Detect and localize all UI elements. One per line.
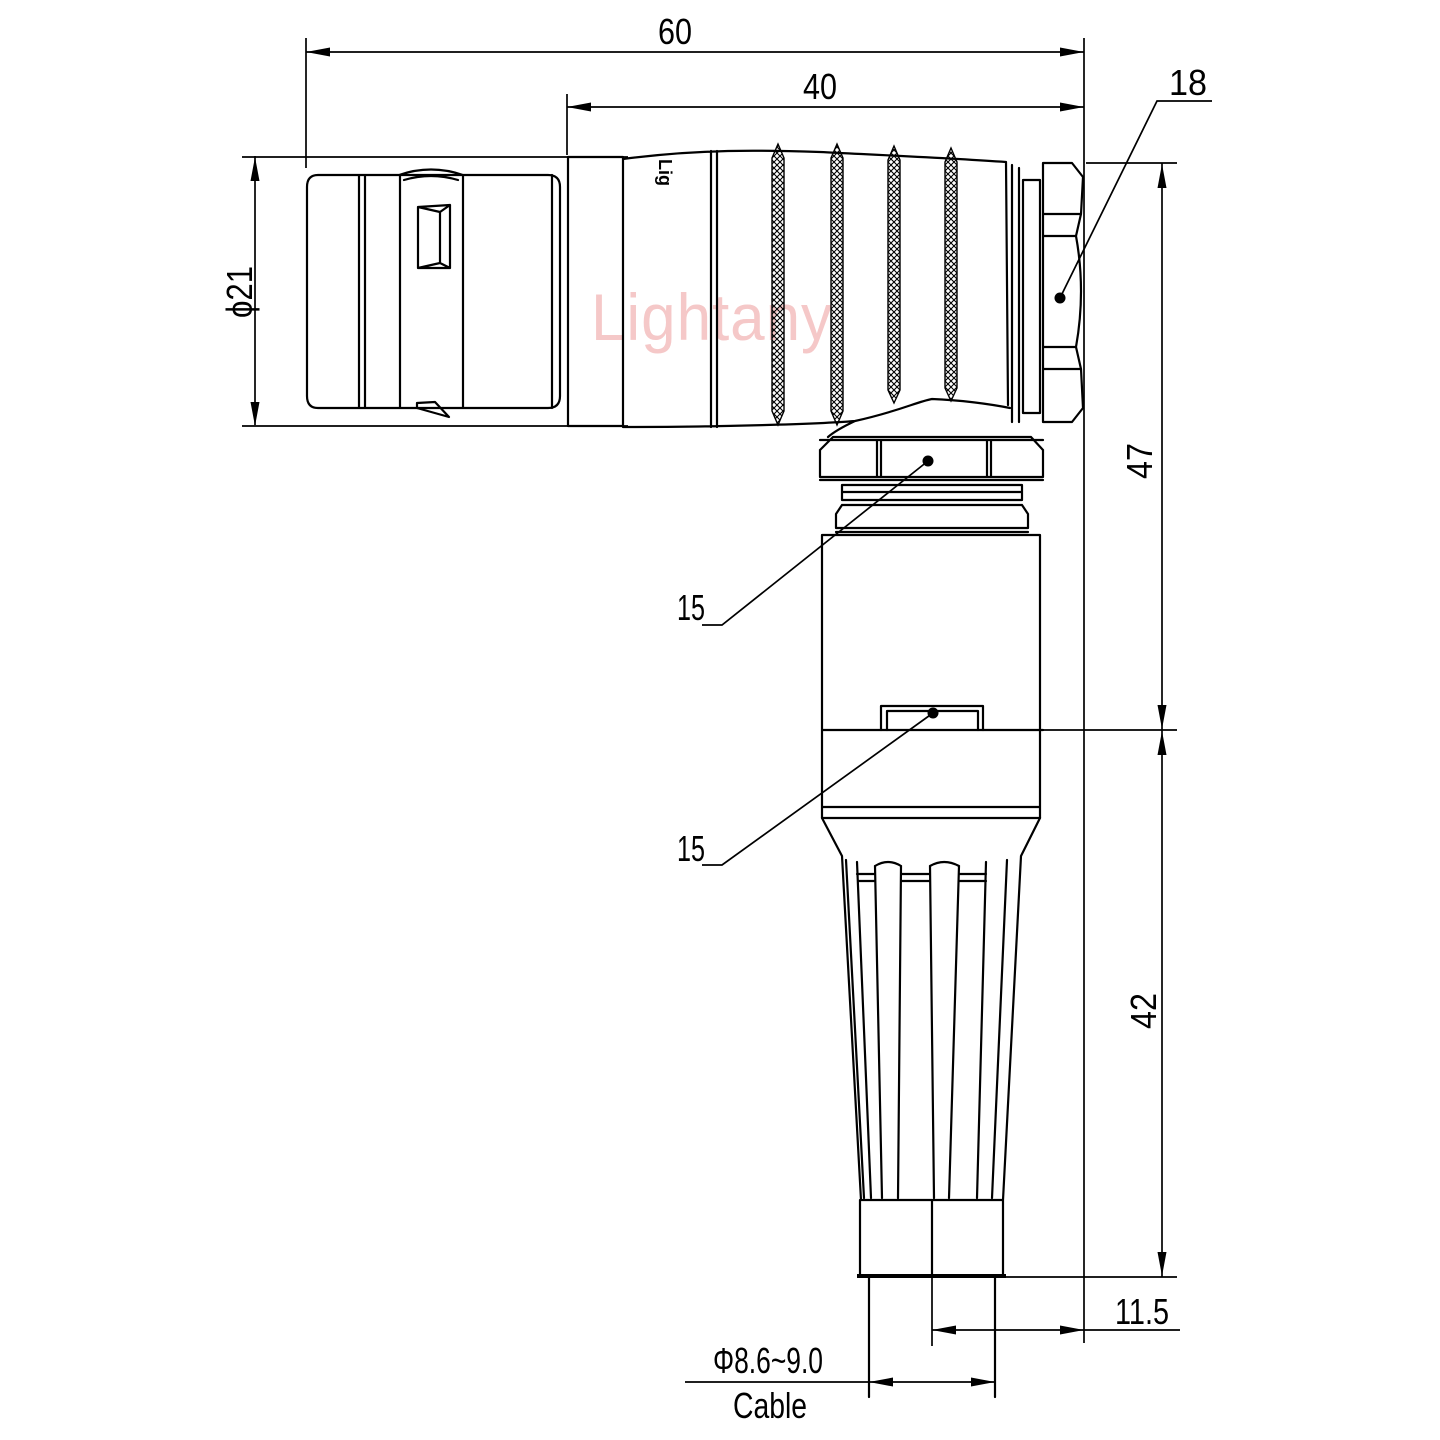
dim-hex-flat: 18	[1169, 62, 1207, 103]
dim-front-diameter: ϕ21	[219, 266, 260, 318]
front-latch-flap	[417, 402, 449, 417]
knurl-band-1	[772, 144, 784, 425]
connector-drawing-svg: Lightany Lig 60 40 18	[0, 0, 1440, 1440]
dim-overall-length: 60	[658, 11, 692, 52]
shell-marking-text: Lig	[655, 159, 675, 186]
grooved-rings	[836, 485, 1028, 532]
dim-cable-offset: 11.5	[1115, 1291, 1169, 1332]
dimension-arrowheads	[251, 48, 1167, 1387]
dim-front-length: 40	[803, 66, 837, 107]
ref-clip: 15	[677, 828, 705, 869]
dim-upper-height: 47	[1119, 443, 1160, 479]
cable-label: Cable	[733, 1385, 807, 1426]
leader-dot-hex-nut	[1055, 293, 1066, 304]
dim-cable-diameter: Φ8.6~9.0	[713, 1340, 823, 1381]
knurl-band-4	[945, 148, 957, 401]
strain-relief-boot	[822, 818, 1040, 1276]
dimension-texts: 60 40 18 ϕ21 47 42 15 15 11.5 Φ8.6~9.0 C…	[219, 11, 1207, 1426]
dim-lower-height: 42	[1123, 993, 1164, 1029]
body-cylinder	[822, 535, 1043, 818]
knurl-band-3	[888, 146, 900, 403]
ref-coupling-nut: 15	[677, 587, 705, 628]
dimension-lines	[242, 38, 1212, 1387]
knurl-band-2	[831, 144, 843, 425]
drawing-page: Lightany Lig 60 40 18	[0, 0, 1440, 1440]
leader-dot-clip	[928, 708, 939, 719]
front-latch-window	[418, 205, 450, 268]
elbow-lower-body	[820, 437, 1043, 1397]
leader-dot-coupling-nut	[923, 456, 934, 467]
